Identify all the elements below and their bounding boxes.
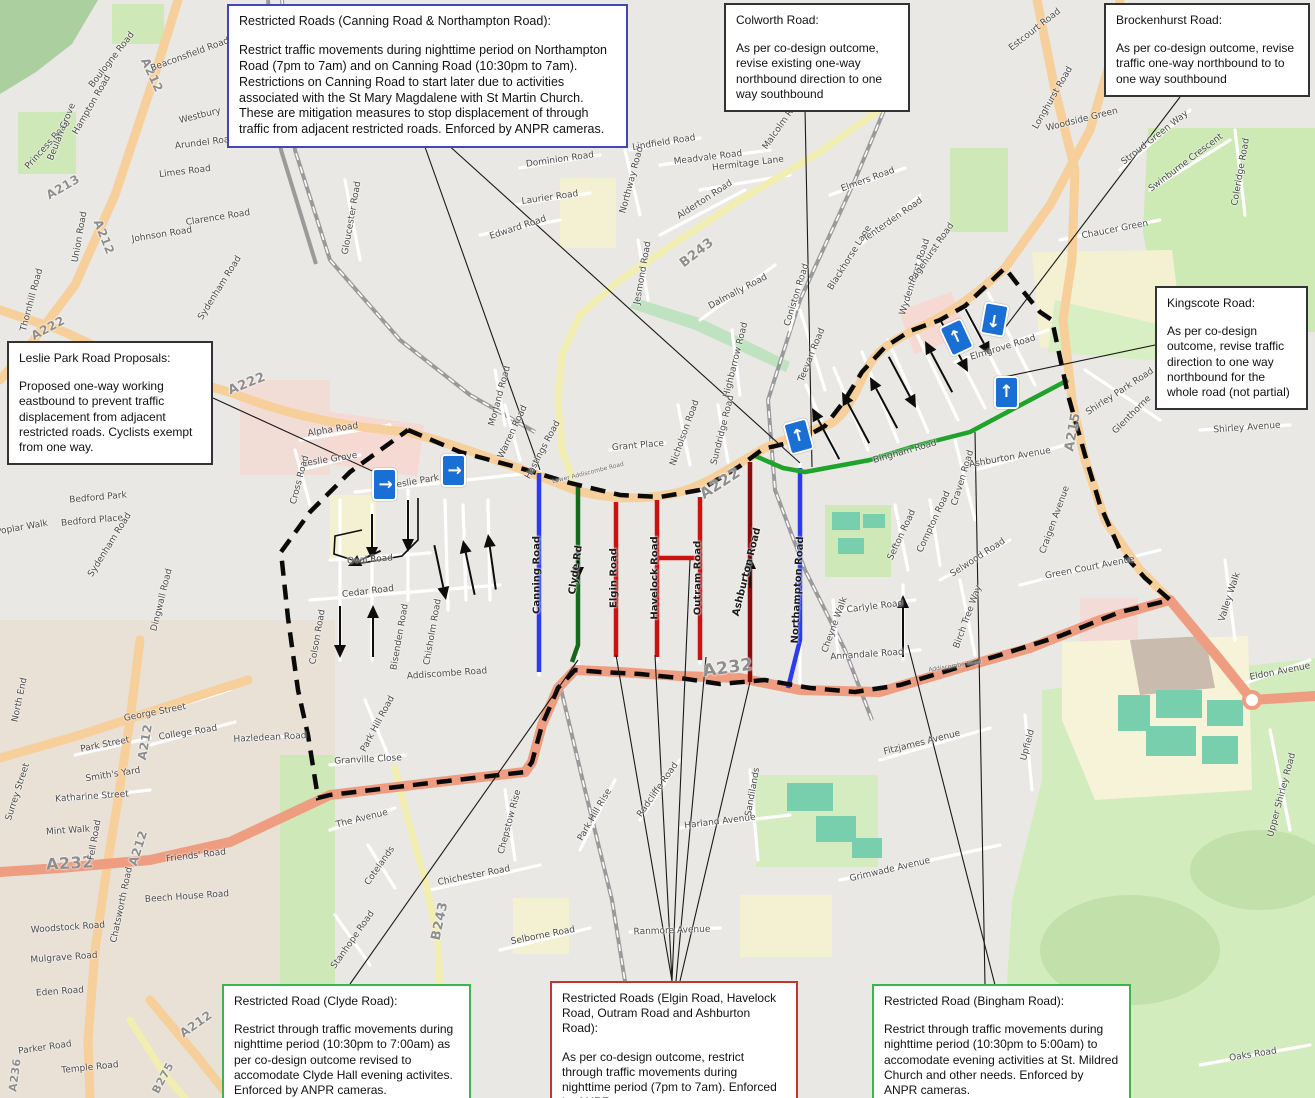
one-way-arrow-glyph: ↑ bbox=[789, 426, 807, 446]
one-way-arrow-glyph: ↑ bbox=[999, 384, 1013, 401]
callout-colworth: Colworth Road: As per co-design outcome,… bbox=[724, 3, 910, 112]
callout-body: Restrict through traffic movements durin… bbox=[234, 1022, 459, 1098]
callout-canning-northampton: Restricted Roads (Canning Road & Northam… bbox=[227, 4, 628, 148]
one-way-sign-icon: ↑ bbox=[994, 376, 1019, 409]
callout-brockenhurst: Brockenhurst Road: As per co-design outc… bbox=[1104, 3, 1310, 97]
callout-title: Leslie Park Road Proposals: bbox=[19, 351, 201, 366]
one-way-sign-icon: ↑ bbox=[372, 468, 397, 501]
traffic-direction-arrows bbox=[334, 309, 990, 658]
callout-leslie-park: Leslie Park Road Proposals: Proposed one… bbox=[7, 341, 213, 465]
one-way-sign-icon: ↑ bbox=[441, 454, 466, 487]
callout-title: Restricted Road (Clyde Road): bbox=[234, 994, 459, 1009]
one-way-arrow-glyph: ↑ bbox=[986, 310, 1003, 329]
scheme-boundary-dashed bbox=[281, 268, 1170, 798]
callout-bingham: Restricted Road (Bingham Road): Restrict… bbox=[872, 984, 1131, 1098]
annotation-leader-lines bbox=[213, 97, 1180, 985]
callout-body: As per co-design outcome, restrict throu… bbox=[562, 1050, 786, 1098]
callout-body: Proposed one-way working eastbound to pr… bbox=[19, 379, 201, 455]
callout-clyde: Restricted Road (Clyde Road): Restrict t… bbox=[222, 984, 471, 1098]
one-way-arrow-glyph: ↑ bbox=[946, 327, 966, 348]
callout-kingscote: Kingscote Road: As per co-design outcome… bbox=[1155, 286, 1308, 410]
callout-title: Brockenhurst Road: bbox=[1116, 13, 1298, 28]
one-way-arrow-glyph: ↑ bbox=[376, 477, 393, 491]
northampton-road-restriction bbox=[788, 468, 800, 688]
callout-title: Restricted Roads (Canning Road & Northam… bbox=[239, 14, 616, 30]
callout-body: Restrict through traffic movements durin… bbox=[884, 1022, 1119, 1098]
callout-body: As per co-design outcome, revise traffic… bbox=[1116, 41, 1298, 87]
callout-title: Colworth Road: bbox=[736, 13, 898, 28]
map-canvas[interactable]: Canning RoadClyde RdElgin RoadHavelock R… bbox=[0, 0, 1315, 1098]
callout-body: Restrict traffic movements during nightt… bbox=[239, 43, 616, 138]
one-way-arrow-glyph: ↑ bbox=[445, 463, 462, 477]
callout-body: As per co-design outcome, revise traffic… bbox=[1167, 324, 1296, 400]
callout-elgin-group: Restricted Roads (Elgin Road, Havelock R… bbox=[550, 981, 798, 1098]
callout-title: Restricted Roads (Elgin Road, Havelock R… bbox=[562, 991, 786, 1037]
callout-title: Restricted Road (Bingham Road): bbox=[884, 994, 1119, 1009]
callout-body: As per co-design outcome, revise existin… bbox=[736, 41, 898, 102]
callout-title: Kingscote Road: bbox=[1167, 296, 1296, 311]
scheme-overlays bbox=[0, 0, 1315, 1098]
